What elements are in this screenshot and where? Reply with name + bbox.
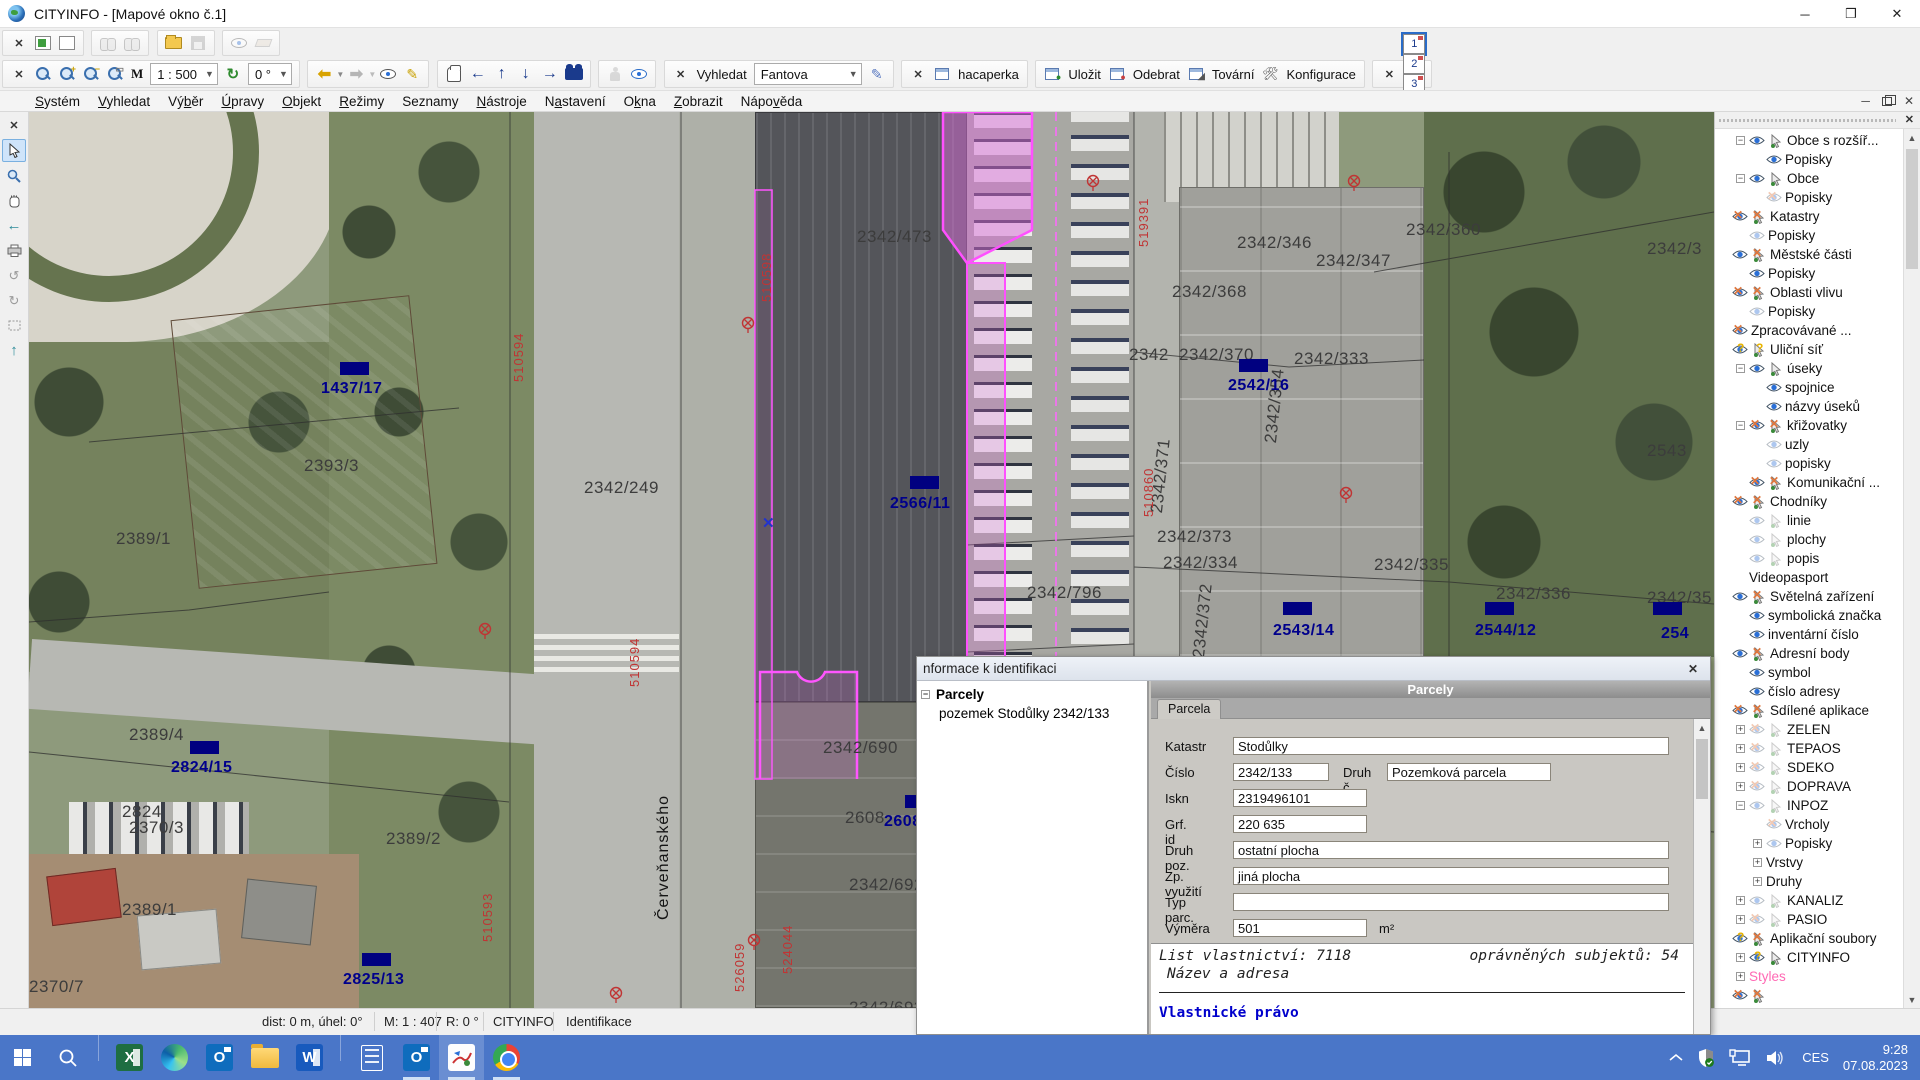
layer-tree-item-popisky[interactable]: Popisky [1715,302,1903,321]
view-eye-icon[interactable] [377,63,399,85]
scale-combobox[interactable]: 1 : 500▼ [150,63,218,85]
toolbar-close-icon[interactable]: ✕ [8,32,30,54]
object-label[interactable]: 2543/14 [1273,622,1334,640]
street-segment-label: 510598 [759,253,774,302]
layer-tree-item-ulic-ni-si-t[interactable]: ??Uliční síť [1715,340,1903,359]
object-label[interactable]: 2544/12 [1475,622,1536,640]
layer-visibility-icon[interactable]: ✕ [1766,191,1782,205]
taskbar-outlook-running-icon[interactable]: O [394,1035,439,1080]
layer-visibility-icon[interactable] [1732,248,1748,262]
layer-tree-item-kanaliz[interactable]: +KANALIZ [1715,891,1903,910]
druhpoz-field[interactable]: ostatní plocha [1233,841,1669,859]
layer-tree-item-popisky[interactable]: Popisky [1715,226,1903,245]
left-tool-strip: ✕←↺↻↑ [0,112,29,1030]
layer-select-icon[interactable]: ✕ [1751,248,1767,262]
layer-tree-item-obce-s-rozs-i-r[interactable]: −Obce s rozšíř... [1715,131,1903,150]
object-label[interactable]: 254 [1661,625,1689,643]
layer-tree-item-u-seky[interactable]: −úseky [1715,359,1903,378]
layer-label: Druhy [1766,874,1802,889]
layer-label: plochy [1787,532,1826,547]
tree-indent [1753,402,1762,411]
tree-expander-icon[interactable]: + [1736,915,1745,924]
tree-expander-icon[interactable]: + [1736,725,1745,734]
clock-date: 07.08.2023 [1843,1058,1908,1074]
taskbar-excel-icon[interactable]: X [107,1035,152,1080]
parcel-label: 2342/346 [1237,233,1312,253]
taskbar-outlook-icon[interactable]: O [197,1035,242,1080]
tree-indent [1736,573,1745,582]
layer-tree-item-plochy[interactable]: plochy [1715,530,1903,549]
tree-expander-icon[interactable]: + [1753,858,1762,867]
pan-left-icon[interactable]: ← [467,63,489,85]
layer-tree-item-popisky[interactable]: popisky [1715,454,1903,473]
pan-right-icon[interactable]: → [539,63,561,85]
layer-tree-item-linie[interactable]: linie [1715,511,1903,530]
user-toolbar-close-icon[interactable]: ✕ [907,63,929,85]
layer-select-icon[interactable]: ✕ [1751,932,1767,946]
layer-label: Popisky [1768,228,1815,243]
taskbar-cityinfo-app-icon[interactable] [439,1035,484,1080]
search-combobox[interactable]: Fantova▼ [754,63,862,85]
tree-expander-icon[interactable]: + [1736,782,1745,791]
layer-visibility-icon[interactable]: ✕ [1732,495,1748,509]
mdi-close-button[interactable]: ✕ [1904,94,1914,108]
left-tool-hand-icon[interactable] [2,189,26,212]
save-config-button[interactable]: Uložit [1068,67,1101,82]
layer-visibility-icon[interactable] [1749,305,1765,319]
layer-select-icon[interactable]: ✕ [1751,210,1767,224]
object-marker[interactable] [1653,602,1682,615]
taskbar-start-icon[interactable] [0,1035,45,1080]
eraser-icon[interactable] [252,32,274,54]
tree-expander-icon[interactable]: + [1736,953,1745,962]
layer-label: názvy úseků [1785,399,1860,414]
preview-eye-icon[interactable] [628,63,650,85]
layer-label: křižovatky [1787,418,1847,433]
search-pen-icon[interactable]: ✎ [866,63,888,85]
rotate-icon[interactable]: ↻ [222,63,244,85]
layer-tree-item-popisky[interactable]: Popisky [1715,150,1903,169]
detail-scroll-up-icon[interactable]: ▲ [1694,719,1710,736]
layer-select-icon[interactable] [1768,951,1784,965]
menu-zobrazit[interactable]: Zobrazit [665,92,732,111]
object-label[interactable]: 2542/16 [1228,377,1289,395]
tree-expander-icon[interactable]: − [1736,801,1745,810]
find-next-binoculars-icon[interactable] [121,32,143,54]
layer-panel-close-icon[interactable]: ✕ [1905,113,1914,126]
layer-select-icon[interactable] [1768,552,1784,566]
layers-doc-icon[interactable] [32,32,54,54]
layer-visibility-icon[interactable]: ? [1732,343,1748,357]
layer-visibility-icon[interactable] [1749,894,1765,908]
layer-tree-item-uzly[interactable]: uzly [1715,435,1903,454]
layer-tree-item-popis[interactable]: popis [1715,549,1903,568]
menu-objekt[interactable]: Objekt [273,92,330,111]
parcel-label: 2342/334 [1163,553,1238,573]
rotation-combobox[interactable]: 0 °▼ [248,63,292,85]
layer-tree-item-sve-telna-zar-i-zeni[interactable]: ✕Světelná zařízení [1715,587,1903,606]
layer-select-icon[interactable] [1768,172,1784,186]
layer-visibility-icon[interactable]: ? [1749,951,1765,965]
layer-select-icon[interactable]: ✕ [1751,647,1767,661]
collapse-icon[interactable]: − [921,690,930,699]
layer-visibility-icon[interactable]: ✕ [1749,723,1765,737]
close-button[interactable]: ✕ [1874,0,1920,28]
menu-okna[interactable]: Okna [615,92,665,111]
layer-tree-item-popisky[interactable]: ✕Popisky [1715,188,1903,207]
object-label[interactable]: 2825/13 [343,971,404,989]
object-marker[interactable] [362,953,391,966]
parcel-label: 2342 [1129,345,1169,365]
layer-visibility-icon[interactable] [1749,134,1765,148]
layer-tree-item[interactable]: ✕✕ [1715,986,1903,1005]
layer-tree-item-popisky[interactable]: Popisky [1715,264,1903,283]
layer-label: Komunikační ... [1787,475,1880,490]
toolbar-row-1: ✕ [0,28,1920,58]
parcel-form: Katastr Stodůlky Číslo 2342/133 Druh č. … [1151,719,1693,939]
layer-visibility-icon[interactable]: ✕ [1732,704,1748,718]
taskbar-chrome-icon[interactable] [484,1035,529,1080]
survey-point-icon [741,316,755,334]
layer-tree-item-inpoz[interactable]: −INPOZ [1715,796,1903,815]
menu-vyhledat[interactable]: Vyhledat [89,92,159,111]
layer-visibility-icon[interactable] [1749,799,1765,813]
object-marker[interactable] [1239,359,1268,372]
taskbar-calculator-icon[interactable] [349,1035,394,1080]
layer-visibility-icon[interactable]: ✕ [1749,913,1765,927]
layer-label: popis [1787,551,1819,566]
layer-visibility-icon[interactable] [1766,438,1782,452]
typparc-field[interactable] [1233,893,1669,911]
pan-down-icon[interactable]: ↓ [515,63,537,85]
identify-dialog-titlebar[interactable]: nformace k identifikaci ✕ [917,657,1710,681]
menu-napoveda[interactable]: Nápověda [732,92,812,111]
layer-visibility-icon[interactable] [1749,609,1765,623]
tree-expander-icon[interactable]: + [1736,744,1745,753]
menu-rezimy[interactable]: Režimy [330,92,393,111]
object-label[interactable]: 1437/17 [321,380,382,398]
layer-visibility-icon[interactable]: ✕ [1749,476,1765,490]
layer-visibility-icon[interactable]: ✕ [1766,818,1782,832]
menu-upravy[interactable]: Úpravy [212,92,273,111]
tree-expander-icon[interactable]: − [1736,364,1745,373]
street-segment-label: 510860 [1141,468,1156,517]
layer-tree-item-adresni-body[interactable]: ✕Adresní body [1715,644,1903,663]
windows-toolbar-close-icon[interactable]: ✕ [1378,63,1400,85]
volume-icon[interactable] [1758,1049,1792,1067]
layer-select-icon[interactable]: ✕ [1751,495,1767,509]
layer-select-icon[interactable] [1768,723,1784,737]
left-tool-arrow-left-icon[interactable]: ← [2,214,26,237]
layer-visibility-icon[interactable] [1749,267,1765,281]
left-tool-rotate-a-icon[interactable]: ↺ [2,264,26,287]
layer-visibility-icon[interactable]: ✕ [1732,324,1748,338]
layer-tree-item-komunikac-ni[interactable]: ✕✕Komunikační ... [1715,473,1903,492]
parcel-label: 2342/335 [1374,555,1449,575]
layer-tree-item-druhy[interactable]: +Druhy [1715,872,1903,891]
detail-scrollbar[interactable]: ▲ [1693,719,1710,1034]
menu-nastroje[interactable]: Nástroje [468,92,536,111]
layer-visibility-icon[interactable] [1749,666,1765,680]
layer-visibility-icon[interactable] [1766,457,1782,471]
edit-pencil-icon[interactable]: ✎ [401,63,423,85]
vymera-field[interactable]: 501 [1233,919,1367,937]
layer-tree-item-videopasport[interactable]: Videopasport [1715,568,1903,587]
zoom-icon[interactable] [32,63,54,85]
layer-tree-item-zelen[interactable]: +✕ZELEN [1715,720,1903,739]
camera-icon[interactable] [563,63,585,85]
layer-select-icon[interactable] [1768,799,1784,813]
layer-visibility-icon[interactable]: ✕ [1749,742,1765,756]
layer-select-icon[interactable] [1768,514,1784,528]
layer-select-icon[interactable] [1768,894,1784,908]
detail-header: Parcely [1151,681,1710,698]
layer-visibility-icon[interactable]: ✕ [1749,419,1765,433]
layer-visibility-icon[interactable] [1749,362,1765,376]
layer-visibility-icon[interactable] [1749,172,1765,186]
tree-indent [1736,478,1745,487]
layer-visibility-icon[interactable] [1749,514,1765,528]
taskbar-file-explorer-icon[interactable] [242,1035,287,1080]
person-icon[interactable] [604,63,626,85]
tree-indent [1719,934,1728,943]
left-tool-printer-icon[interactable] [2,239,26,262]
layer-select-icon[interactable]: ? [1751,343,1767,357]
layer-label: Zpracovávané ... [1751,323,1852,338]
layer-tree-item-pasio[interactable]: +✕PASIO [1715,910,1903,929]
minimize-button[interactable]: ─ [1782,0,1828,28]
identify-detail-pane: Parcely Parcela Katastr Stodůlky Číslo 2… [1151,681,1710,1034]
layer-label: Vrcholy [1785,817,1830,832]
user-button[interactable]: hacaperka [958,67,1019,82]
layer-panel-scrollbar[interactable]: ▲ ▼ [1903,129,1920,1008]
layer-tree-item-sdi-lene-aplikace[interactable]: ✕✕Sdílené aplikace [1715,701,1903,720]
zoom-extent-icon[interactable]: ▭ [104,63,126,85]
layer-visibility-icon[interactable] [1749,685,1765,699]
survey-point-icon [1347,174,1361,192]
object-marker[interactable] [190,741,219,754]
layer-tree-item-tepaos[interactable]: +✕TEPAOS [1715,739,1903,758]
layer-select-icon[interactable] [1768,533,1784,547]
pan-up-icon[interactable]: ↑ [491,63,513,85]
tree-expander-icon[interactable]: + [1736,763,1745,772]
layer-tree-item-doprava[interactable]: +✕DOPRAVA [1715,777,1903,796]
layer-visibility-icon[interactable]: ✕ [1749,780,1765,794]
layer-tree-item-oblasti-vlivu[interactable]: ✕✕Oblasti vlivu [1715,283,1903,302]
layer-tree-item-spojnice[interactable]: spojnice [1715,378,1903,397]
menu-system[interactable]: Systém [26,92,89,111]
tree-expander-icon[interactable]: − [1736,174,1745,183]
visibility-eye-icon[interactable] [228,32,250,54]
layer-select-icon[interactable]: ✕ [1751,590,1767,604]
tree-expander-icon[interactable]: + [1753,839,1762,848]
layer-visibility-icon[interactable] [1749,628,1765,642]
layer-visibility-icon[interactable]: ✕ [1732,286,1748,300]
maximize-button[interactable]: ❒ [1828,0,1874,28]
layer-select-icon[interactable]: ✕ [1751,989,1767,1003]
layer-tree-item-c-i-slo-adresy[interactable]: číslo adresy [1715,682,1903,701]
ownership-right-heading: Vlastnické právo [1159,1005,1685,1021]
save-floppy-icon[interactable] [187,32,209,54]
forward-arrow-icon[interactable]: ➡ [345,63,367,85]
security-shield-icon[interactable] [1690,1048,1722,1068]
layer-visibility-icon[interactable]: ✕ [1732,989,1748,1003]
zoom-in-icon[interactable]: + [56,63,78,85]
network-icon[interactable] [1722,1049,1758,1067]
remove-config-icon: ● [1106,63,1128,85]
back-arrow-icon[interactable]: ⬅ [313,63,335,85]
layer-tree-item-chodni-ky[interactable]: ✕✕Chodníky [1715,492,1903,511]
layer-select-icon[interactable]: ✕ [1768,419,1784,433]
parcel-label: 2342/249 [584,478,659,498]
tree-expander-icon[interactable]: + [1736,896,1745,905]
parcel-label: 2342/3 [1647,239,1702,259]
layer-tree-item-zpracova-vane[interactable]: ✕Zpracovávané ... [1715,321,1903,340]
layer-select-icon[interactable] [1768,742,1784,756]
taskbar-word-icon[interactable]: W [287,1035,332,1080]
left-tool-zoom-rect-icon[interactable] [2,314,26,337]
layer-tree-item-sdeko[interactable]: +✕SDEKO [1715,758,1903,777]
mdi-minimize-button[interactable]: ─ [1861,94,1870,108]
layer-tree-item-vrstvy[interactable]: +Vrstvy [1715,853,1903,872]
object-label[interactable]: 2824/15 [171,759,232,777]
object-marker[interactable] [340,362,369,375]
layer-tree-item-obce[interactable]: −Obce [1715,169,1903,188]
object-marker[interactable] [1283,602,1312,615]
layer-tree-item-na-zvy-u-seku[interactable]: názvy úseků [1715,397,1903,416]
mdi-restore-button[interactable] [1882,97,1892,106]
taskbar-search-icon[interactable] [45,1035,90,1080]
menu-seznamy[interactable]: Seznamy [393,92,467,111]
layer-tree-item-popisky[interactable]: +Popisky [1715,834,1903,853]
zpvyuziti-field[interactable]: jiná plocha [1233,867,1669,885]
layer-panel-grip[interactable]: ✕ [1715,112,1920,129]
layer-label: Oblasti vlivu [1770,285,1843,300]
object-marker[interactable] [1485,602,1514,615]
layer-visibility-icon[interactable] [1732,590,1748,604]
layer-label: INPOZ [1787,798,1828,813]
search-toolbar-close-icon[interactable]: ✕ [670,63,692,85]
layer-select-icon[interactable]: ✕ [1768,476,1784,490]
layer-tree-item-symbolicka-znac-ka[interactable]: symbolická značka [1715,606,1903,625]
layer-visibility-icon[interactable] [1766,400,1782,414]
parcel-label: 2342/692 [849,875,924,895]
left-tool-rotate-b-icon[interactable]: ↻ [2,289,26,312]
layer-tree-item-aplikac-ni-soubory[interactable]: ?✕Aplikační soubory [1715,929,1903,948]
open-folder-icon[interactable] [163,32,185,54]
left-tool-pointer-icon[interactable] [2,139,26,162]
left-tool-magnifier-icon[interactable] [2,164,26,187]
find-binoculars-icon[interactable] [97,32,119,54]
layer-label: DOPRAVA [1787,779,1851,794]
left-tool-arrow-up-icon[interactable]: ↑ [2,339,26,362]
iskn-field[interactable]: 2319496101 [1233,789,1367,807]
tree-expander-icon[interactable]: − [1736,421,1745,430]
menu-vyber[interactable]: Výběr [159,92,212,111]
layer-visibility-icon[interactable] [1766,381,1782,395]
language-indicator[interactable]: CES [1792,1050,1839,1065]
layer-visibility-icon[interactable] [1749,229,1765,243]
layer-select-icon[interactable] [1768,913,1784,927]
cityinfo-logo-icon [8,5,25,22]
detail-scroll-thumb[interactable] [1696,739,1708,799]
layer-select-icon[interactable] [1768,134,1784,148]
layer-visibility-icon[interactable]: ✕ [1749,761,1765,775]
layer-visibility-icon[interactable] [1766,153,1782,167]
layer-visibility-icon[interactable]: ✕ [1732,210,1748,224]
layer-select-icon[interactable]: ✕ [1751,286,1767,300]
scroll-up-icon[interactable]: ▲ [1904,129,1920,146]
tree-expander-icon[interactable]: + [1736,972,1745,981]
layer-tree-item-kr-iz-ovatky[interactable]: −✕✕křižovatky [1715,416,1903,435]
zoom-toolbar-close-icon[interactable]: ✕ [8,63,30,85]
scroll-thumb[interactable] [1906,149,1918,269]
remove-config-button[interactable]: Odebrat [1133,67,1180,82]
layers-copy-icon[interactable] [56,32,78,54]
layer-tree-item-me-stske-c-a-sti[interactable]: ✕Městské části [1715,245,1903,264]
layer-label: Popisky [1768,304,1815,319]
tree-expander-icon[interactable]: − [1736,136,1745,145]
map-window-button-2[interactable]: 2 [1403,54,1425,74]
taskbar-edge-icon[interactable] [152,1035,197,1080]
layer-visibility-icon[interactable] [1732,647,1748,661]
layer-visibility-icon[interactable] [1749,533,1765,547]
layer-visibility-icon[interactable] [1766,837,1782,851]
object-label[interactable]: 2566/11 [890,495,950,513]
result-tree-root[interactable]: − Parcely [921,687,1143,702]
layer-tree-item-symbol[interactable]: symbol [1715,663,1903,682]
left-tool-close-icon[interactable]: ✕ [2,114,26,137]
ownership-text: List vlastnictví: 7118oprávněných subjek… [1151,943,1693,1034]
map-window-button-1[interactable]: 1 [1403,34,1425,54]
result-tree-item[interactable]: pozemek Stodůlky 2342/133 [939,706,1143,721]
druhc-field[interactable]: Pozemková parcela [1387,763,1551,781]
layer-tree-item-styles[interactable]: +Styles [1715,967,1903,986]
configuration-button[interactable]: Konfigurace [1286,67,1355,82]
layer-tree-item-katastry[interactable]: ✕✕Katastry [1715,207,1903,226]
identify-dialog-close-icon[interactable]: ✕ [1682,662,1704,676]
layer-tree-item-inventa-rni-c-i-slo[interactable]: inventární číslo [1715,625,1903,644]
tree-indent [1753,440,1762,449]
grfid-field[interactable]: 220 635 [1233,815,1367,833]
object-marker[interactable] [910,476,939,489]
tab-parcela[interactable]: Parcela [1157,699,1221,719]
parcel-label: 2370/3 [129,818,184,838]
layer-select-icon[interactable]: ✕ [1751,704,1767,718]
layer-visibility-icon[interactable] [1749,552,1765,566]
layer-select-icon[interactable] [1768,780,1784,794]
layer-select-icon[interactable] [1768,362,1784,376]
katastr-field[interactable]: Stodůlky [1233,737,1669,755]
zoom-out-icon[interactable]: − [80,63,102,85]
pan-hand-icon[interactable] [443,63,465,85]
cislo-field[interactable]: 2342/133 [1233,763,1329,781]
tree-expander-icon[interactable]: + [1753,877,1762,886]
layer-tree-item-vrcholy[interactable]: ✕Vrcholy [1715,815,1903,834]
factory-config-button[interactable]: Tovární [1212,67,1255,82]
clock[interactable]: 9:28 07.08.2023 [1839,1042,1920,1074]
layer-label: Vrstvy [1766,855,1803,870]
scroll-down-icon[interactable]: ▼ [1904,991,1920,1008]
layer-select-icon[interactable] [1768,761,1784,775]
layer-visibility-icon[interactable]: ? [1732,932,1748,946]
menu-nastaveni[interactable]: Nastavení [536,92,615,111]
layer-tree-item-cityinfo[interactable]: +?CITYINFO [1715,948,1903,967]
parcel-label: 2608 [845,808,885,828]
identify-dialog-title: nformace k identifikaci [923,661,1057,676]
tray-chevron-icon[interactable] [1662,1053,1690,1062]
tree-indent [1719,991,1728,1000]
